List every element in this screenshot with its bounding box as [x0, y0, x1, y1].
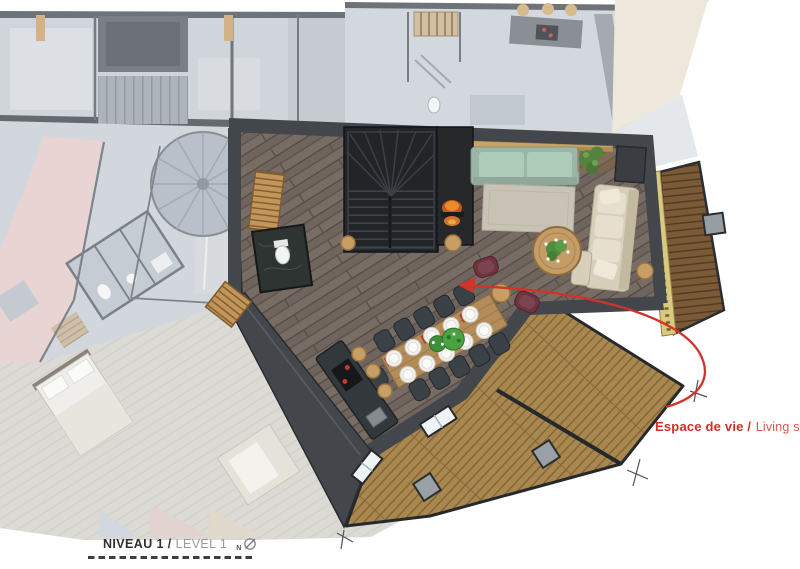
wine-shelf	[249, 171, 285, 232]
floor-plan-page: Espace de vie / Living space NIVEAU 1 / …	[0, 0, 800, 569]
living-space-label: Espace de vie / Living space	[655, 418, 800, 436]
cabinet	[615, 146, 646, 183]
balcony-box	[703, 213, 726, 236]
planter-plant	[577, 147, 615, 175]
level-title-block: NIVEAU 1 / LEVEL 1 N	[88, 536, 268, 559]
north-letter: N	[236, 545, 241, 552]
level-title-fr: NIVEAU 1 /	[103, 537, 172, 551]
powder-room	[252, 225, 312, 293]
level-title-en: LEVEL 1	[176, 537, 228, 551]
rug	[482, 184, 575, 233]
fireplace	[437, 127, 473, 245]
dashed-underline	[88, 556, 254, 559]
floor-plan	[0, 0, 800, 569]
coffee-table	[533, 227, 581, 275]
north-compass-icon	[242, 536, 258, 552]
green-sofa	[471, 147, 579, 185]
staircase	[344, 127, 438, 252]
living-space-label-en: Living space	[756, 420, 800, 434]
living-space-label-fr: Espace de vie /	[655, 419, 751, 434]
north-indicator: N	[236, 536, 258, 552]
faded-unit-top-left	[0, 11, 345, 131]
